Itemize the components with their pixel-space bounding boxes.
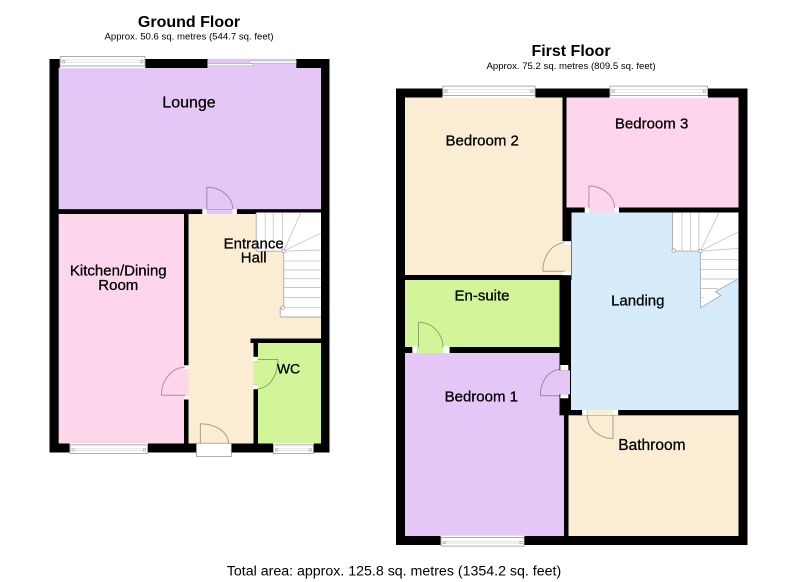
- svg-text:Ground Floor: Ground Floor: [138, 14, 240, 31]
- svg-text:Lounge: Lounge: [162, 95, 215, 112]
- svg-text:Bathroom: Bathroom: [618, 437, 685, 454]
- svg-text:WC: WC: [277, 361, 300, 377]
- svg-text:Bedroom 1: Bedroom 1: [445, 388, 518, 405]
- svg-text:Bedroom 2: Bedroom 2: [446, 133, 519, 150]
- svg-text:Total area: approx. 125.8 sq.: Total area: approx. 125.8 sq. metres (13…: [227, 564, 561, 580]
- svg-text:Approx. 75.2 sq. metres (809.5: Approx. 75.2 sq. metres (809.5 sq. feet): [486, 61, 655, 72]
- svg-text:Bedroom 3: Bedroom 3: [615, 116, 688, 133]
- svg-text:Hall: Hall: [241, 250, 267, 267]
- svg-text:First Floor: First Floor: [531, 43, 610, 60]
- svg-text:Approx. 50.6 sq. metres (544.7: Approx. 50.6 sq. metres (544.7 sq. feet): [104, 31, 273, 42]
- svg-text:En-suite: En-suite: [454, 288, 509, 305]
- svg-text:Landing: Landing: [611, 293, 664, 310]
- svg-text:Room: Room: [98, 277, 138, 294]
